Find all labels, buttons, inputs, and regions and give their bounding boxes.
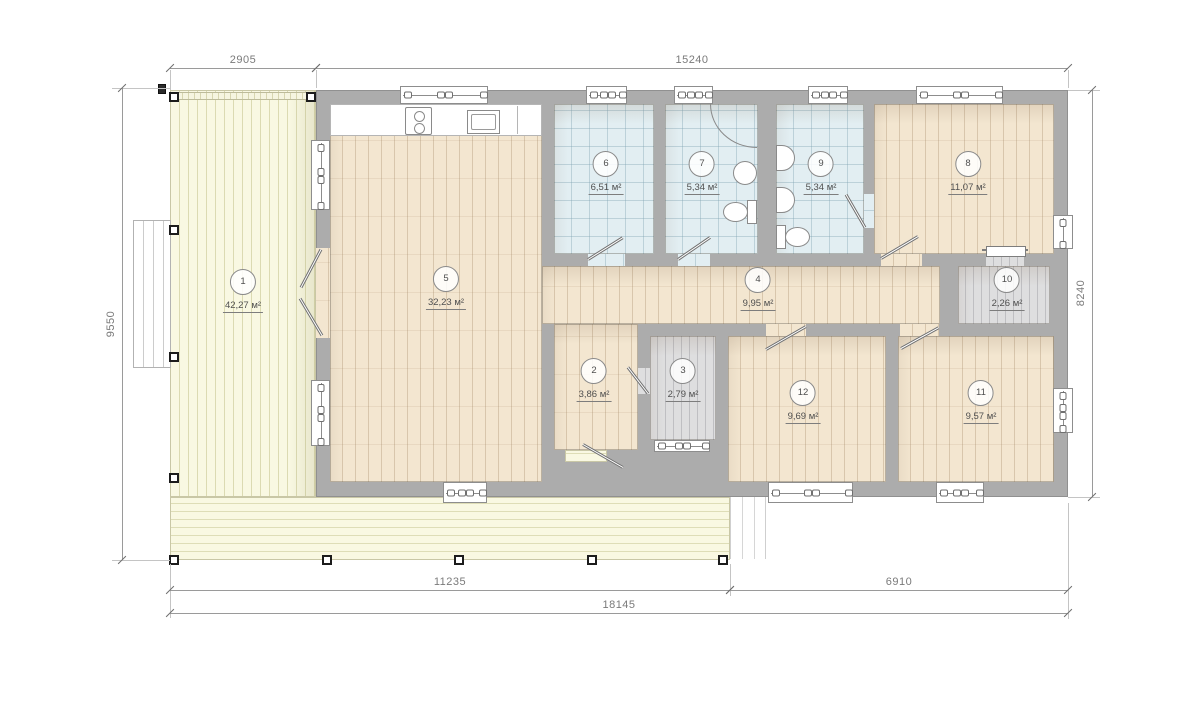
dim-text-6910: 6910 bbox=[886, 576, 912, 588]
window-hinge-icon bbox=[590, 92, 598, 99]
deck-post-icon bbox=[169, 352, 179, 362]
deck-post-icon bbox=[169, 473, 179, 483]
window-10 bbox=[311, 380, 330, 446]
window-hinge-icon bbox=[658, 443, 666, 450]
dim-extension-line bbox=[730, 564, 731, 596]
deck-corner-post-icon bbox=[158, 84, 166, 94]
window-hinge-icon bbox=[920, 92, 928, 99]
window-hinge-icon bbox=[466, 489, 474, 496]
deck-top-edge bbox=[170, 92, 316, 100]
porch-side-steps bbox=[730, 497, 766, 559]
room-11-floor bbox=[898, 336, 1054, 482]
window-hinge-icon bbox=[687, 92, 695, 99]
dim-text-11235: 11235 bbox=[434, 576, 466, 588]
window-hinge-icon bbox=[1060, 412, 1067, 420]
room-10-floor bbox=[958, 266, 1050, 324]
window-8 bbox=[654, 440, 710, 452]
dim-text-2905: 2905 bbox=[230, 54, 256, 66]
window-hinge-icon bbox=[683, 443, 691, 450]
deck-post-icon bbox=[718, 555, 728, 565]
deck-side-stairs bbox=[133, 220, 171, 368]
window-hinge-icon bbox=[317, 168, 324, 176]
window-hinge-icon bbox=[961, 489, 969, 496]
dim-text-15240: 15240 bbox=[675, 54, 708, 66]
window-hinge-icon bbox=[940, 489, 948, 496]
floor-plan-canvas: 142,27 м²23,86 м²32,79 м²49,95 м²532,23 … bbox=[0, 0, 1200, 705]
window-hinge-icon bbox=[404, 92, 412, 99]
window-hinge-icon bbox=[845, 489, 853, 496]
dim-line-9550 bbox=[122, 88, 123, 560]
deck-bottom-band bbox=[170, 497, 730, 560]
dim-line-6910 bbox=[730, 590, 1068, 591]
bathroom7-toilet-tank-icon bbox=[747, 200, 757, 224]
window-hinge-icon bbox=[317, 144, 324, 152]
door-opening-3 bbox=[864, 194, 874, 228]
window-hinge-icon bbox=[705, 92, 713, 99]
window-4 bbox=[916, 86, 1003, 104]
stove-burner-icon bbox=[414, 123, 425, 134]
dim-line-11235 bbox=[170, 590, 730, 591]
dim-text-18145: 18145 bbox=[602, 599, 635, 611]
window-6 bbox=[768, 482, 853, 503]
window-12 bbox=[1053, 388, 1073, 433]
kitchen-sink-icon bbox=[467, 110, 500, 134]
bathroom9-toilet-bowl-icon bbox=[785, 227, 810, 247]
dim-line-8240 bbox=[1092, 90, 1093, 497]
window-hinge-icon bbox=[976, 489, 984, 496]
deck-post-icon bbox=[169, 225, 179, 235]
window-0 bbox=[400, 86, 488, 104]
deck-post-icon bbox=[322, 555, 332, 565]
room-5-floor bbox=[330, 104, 542, 482]
bathroom7-sink-icon bbox=[733, 161, 757, 185]
dim-text-9550: 9550 bbox=[105, 311, 117, 337]
room-2-floor bbox=[554, 324, 638, 450]
room-3-floor bbox=[650, 336, 716, 440]
window-hinge-icon bbox=[458, 489, 466, 496]
dim-extension-line bbox=[1068, 70, 1069, 88]
dim-extension-line bbox=[1068, 503, 1069, 619]
window-hinge-icon bbox=[702, 443, 710, 450]
window-hinge-icon bbox=[678, 92, 686, 99]
window-hinge-icon bbox=[1060, 219, 1067, 227]
deck-terrace-floor bbox=[170, 90, 316, 497]
dim-extension-line bbox=[170, 70, 171, 90]
window-hinge-icon bbox=[821, 92, 829, 99]
window-hinge-icon bbox=[317, 202, 324, 210]
kitchen-counter bbox=[330, 104, 542, 136]
dim-extension-line bbox=[1068, 90, 1100, 91]
window-hinge-icon bbox=[812, 92, 820, 99]
window-hinge-icon bbox=[608, 92, 616, 99]
window-hinge-icon bbox=[675, 443, 683, 450]
window-hinge-icon bbox=[317, 414, 324, 422]
dim-line-2905 bbox=[170, 68, 316, 69]
window-hinge-icon bbox=[619, 92, 627, 99]
kitchen-sink-basin bbox=[471, 114, 496, 130]
window-9 bbox=[311, 140, 330, 210]
kitchen-counter-divider bbox=[517, 106, 518, 134]
dim-text-8240: 8240 bbox=[1075, 280, 1087, 306]
window-hinge-icon bbox=[829, 92, 837, 99]
window-hinge-icon bbox=[953, 489, 961, 496]
window-hinge-icon bbox=[480, 92, 488, 99]
window-hinge-icon bbox=[447, 489, 455, 496]
room-8-floor bbox=[874, 104, 1054, 254]
dim-line-15240 bbox=[316, 68, 1068, 69]
window-hinge-icon bbox=[437, 92, 445, 99]
room-12-floor bbox=[728, 336, 886, 482]
window-hinge-icon bbox=[1060, 404, 1067, 412]
dim-extension-line bbox=[1068, 497, 1100, 498]
deck-post-icon bbox=[169, 92, 179, 102]
window-hinge-icon bbox=[840, 92, 848, 99]
window-hinge-icon bbox=[317, 438, 324, 446]
window-hinge-icon bbox=[953, 92, 961, 99]
deck-post-icon bbox=[587, 555, 597, 565]
sliding-door-panel bbox=[986, 246, 1026, 257]
stove-burner-icon bbox=[414, 111, 425, 122]
stove-icon bbox=[405, 107, 432, 135]
dim-line-18145 bbox=[170, 613, 1068, 614]
deck-post-icon bbox=[306, 92, 316, 102]
window-hinge-icon bbox=[812, 489, 820, 496]
room-4-floor bbox=[542, 266, 940, 324]
window-hinge-icon bbox=[600, 92, 608, 99]
window-hinge-icon bbox=[317, 406, 324, 414]
dim-extension-line bbox=[316, 70, 317, 88]
window-hinge-icon bbox=[317, 384, 324, 392]
window-11 bbox=[1053, 215, 1073, 249]
window-hinge-icon bbox=[1060, 425, 1067, 433]
bathroom7-toilet-bowl-icon bbox=[723, 202, 748, 222]
window-5 bbox=[443, 482, 487, 503]
window-hinge-icon bbox=[961, 92, 969, 99]
window-hinge-icon bbox=[995, 92, 1003, 99]
window-hinge-icon bbox=[445, 92, 453, 99]
window-hinge-icon bbox=[772, 489, 780, 496]
window-hinge-icon bbox=[804, 489, 812, 496]
door-opening-0 bbox=[316, 248, 330, 338]
room-6-floor bbox=[554, 104, 654, 254]
window-hinge-icon bbox=[695, 92, 703, 99]
deck-post-icon bbox=[454, 555, 464, 565]
window-hinge-icon bbox=[479, 489, 487, 496]
window-2 bbox=[674, 86, 713, 104]
window-hinge-icon bbox=[1060, 392, 1067, 400]
window-7 bbox=[936, 482, 984, 503]
window-hinge-icon bbox=[317, 176, 324, 184]
window-hinge-icon bbox=[1060, 241, 1067, 249]
window-1 bbox=[586, 86, 627, 104]
window-3 bbox=[808, 86, 848, 104]
